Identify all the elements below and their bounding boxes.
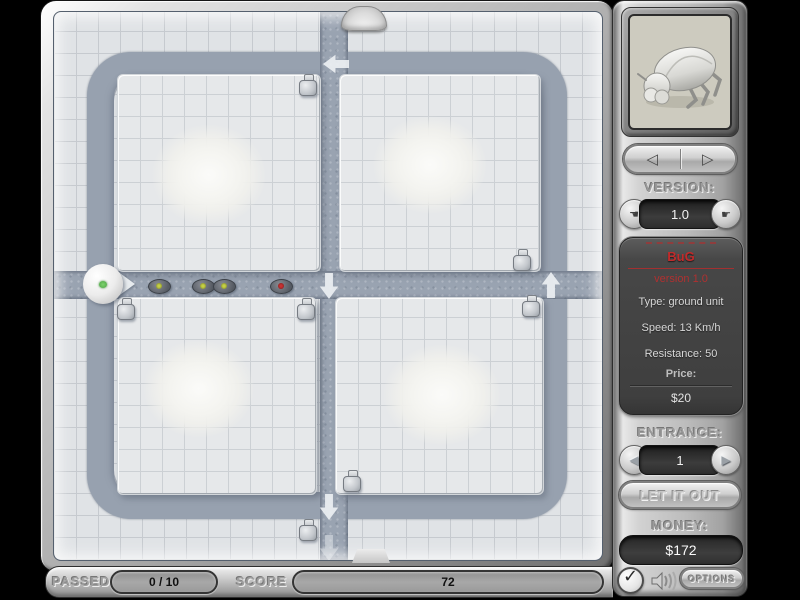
- unit-version: version 1.0: [620, 273, 742, 285]
- status-bar: PASSED 0 / 10 SCORE 72: [45, 566, 613, 598]
- passed-counter: 0 / 10: [110, 570, 218, 594]
- speaker-icon: [650, 569, 678, 593]
- version-value: 1.0: [639, 199, 721, 229]
- entrance-green-dot: [99, 281, 107, 288]
- let-it-out-button[interactable]: LET IT OUT: [619, 481, 741, 509]
- money-label: MONEY:: [613, 518, 747, 533]
- bug-enemy: [148, 279, 171, 294]
- bug-enemy: [213, 279, 236, 294]
- turret-icon[interactable]: [342, 470, 362, 492]
- previous-unit-button[interactable]: ◁: [625, 146, 680, 172]
- version-label: VERSION:: [613, 180, 747, 195]
- bug-enemy: [270, 279, 293, 294]
- confirm-toggle-button[interactable]: ✓: [617, 567, 644, 594]
- check-icon: ✓: [623, 566, 638, 587]
- entrance-sphere: [83, 264, 123, 304]
- let-it-out-label: LET IT OUT: [640, 488, 721, 503]
- top-entrance-dome: [341, 6, 387, 31]
- game-window: PASSED 0 / 10 SCORE 72: [0, 0, 800, 600]
- playfield-frame: [40, 0, 614, 572]
- money-value: $172: [619, 535, 743, 565]
- score-counter: 72: [292, 570, 604, 594]
- board: [53, 11, 603, 561]
- price-label: Price:: [620, 368, 742, 380]
- bug-marker-dot: [278, 283, 284, 289]
- quadrant-bottom-right[interactable]: [335, 297, 544, 495]
- bug-marker-dot: [200, 283, 206, 289]
- quadrant-bottom-left[interactable]: [117, 297, 317, 495]
- turret-icon[interactable]: [296, 298, 316, 320]
- bug-marker-dot: [156, 283, 162, 289]
- entrance-selector: ◀ 1 ▶: [619, 444, 741, 474]
- turret-icon[interactable]: [512, 249, 532, 271]
- version-selector: ☚ 1.0 ☛: [619, 198, 741, 228]
- bottom-exit-pad: [352, 549, 390, 563]
- passed-label: PASSED: [52, 574, 111, 589]
- unit-preview-image: [628, 14, 732, 130]
- bug-marker-dot: [221, 283, 227, 289]
- right-arrow-icon: ▶: [721, 453, 730, 467]
- options-label: OPTIONS: [688, 574, 736, 584]
- quadrant-top-left[interactable]: [117, 74, 321, 272]
- entrance-label: ENTRANCE:: [613, 425, 747, 440]
- turret-icon[interactable]: [116, 298, 136, 320]
- unit-type: Type: ground unit: [620, 296, 742, 308]
- marquee-decoration: [646, 242, 716, 244]
- unit-resistance: Resistance: 50: [620, 348, 742, 360]
- unit-info-panel: BuG version 1.0 Type: ground unit Speed:…: [619, 237, 743, 415]
- quadrant-top-right[interactable]: [339, 74, 541, 272]
- turret-icon[interactable]: [521, 295, 541, 317]
- sound-toggle-button[interactable]: [650, 569, 678, 593]
- unit-speed: Speed: 13 Km/h: [620, 322, 742, 334]
- divider: [630, 385, 732, 386]
- turret-icon[interactable]: [298, 74, 318, 96]
- entrance-value: 1: [639, 445, 721, 475]
- next-unit-button[interactable]: ▷: [681, 146, 736, 172]
- version-next-button[interactable]: ☛: [711, 199, 741, 229]
- unit-browser: ◁ ▷: [623, 144, 737, 174]
- divider: [628, 268, 734, 269]
- entrance-next-button[interactable]: ▶: [711, 445, 741, 475]
- turret-icon[interactable]: [298, 519, 318, 541]
- control-sidebar: ◁ ▷ VERSION: ☚ 1.0 ☛ BuG version 1.0 Typ…: [612, 0, 748, 597]
- score-label: SCORE: [236, 574, 287, 589]
- beetle-icon: [630, 16, 730, 128]
- unit-preview-frame: [621, 7, 739, 137]
- options-button[interactable]: OPTIONS: [680, 568, 744, 589]
- price-value: $20: [620, 391, 742, 405]
- left-arrow-icon: ◀: [629, 453, 638, 467]
- unit-name: BuG: [620, 249, 742, 264]
- bug-enemy: [192, 279, 215, 294]
